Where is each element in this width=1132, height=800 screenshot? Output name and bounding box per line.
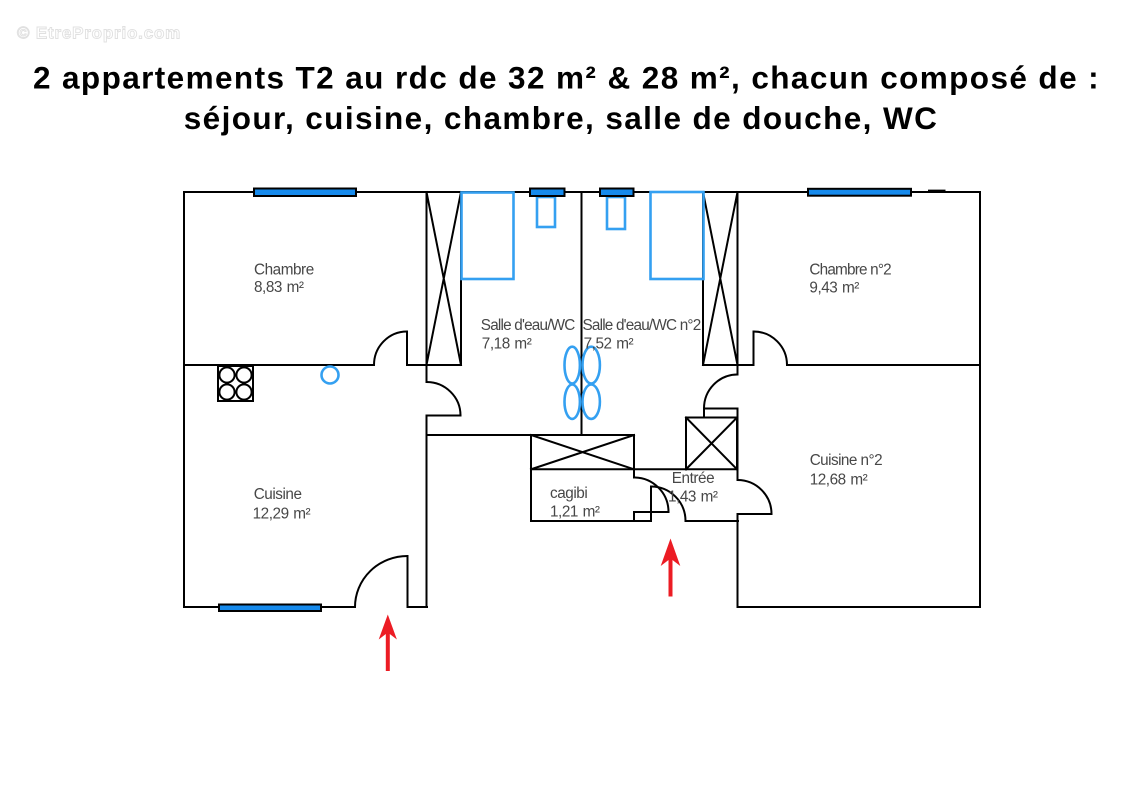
svg-text:12,68 m²: 12,68 m² xyxy=(810,472,868,489)
svg-text:7,52 m²: 7,52 m² xyxy=(584,336,634,353)
svg-text:© EtreProprio.com: © EtreProprio.com xyxy=(17,24,181,43)
svg-text:Chambre: Chambre xyxy=(254,262,314,279)
svg-text:8,83 m²: 8,83 m² xyxy=(254,279,304,296)
svg-text:2 appartements T2 au rdc de 32: 2 appartements T2 au rdc de 32 m² & 28 m… xyxy=(33,59,1100,95)
svg-text:Salle d'eau/WC: Salle d'eau/WC xyxy=(481,317,576,334)
svg-text:1,43 m²: 1,43 m² xyxy=(668,489,718,506)
svg-text:7,18 m²: 7,18 m² xyxy=(482,336,532,353)
svg-text:Cuisine: Cuisine xyxy=(254,486,302,503)
svg-text:Entrée: Entrée xyxy=(672,470,714,487)
svg-text:1,21 m²: 1,21 m² xyxy=(550,504,600,521)
svg-text:Salle d'eau/WC n°2: Salle d'eau/WC n°2 xyxy=(583,317,701,334)
svg-text:Cuisine n°2: Cuisine n°2 xyxy=(810,452,882,469)
svg-text:9,43 m²: 9,43 m² xyxy=(809,280,859,297)
svg-text:Chambre n°2: Chambre n°2 xyxy=(809,262,891,279)
svg-text:12,29 m²: 12,29 m² xyxy=(253,506,311,523)
svg-text:cagibi: cagibi xyxy=(550,485,587,502)
svg-text:séjour, cuisine, chambre, sall: séjour, cuisine, chambre, salle de douch… xyxy=(184,100,938,136)
